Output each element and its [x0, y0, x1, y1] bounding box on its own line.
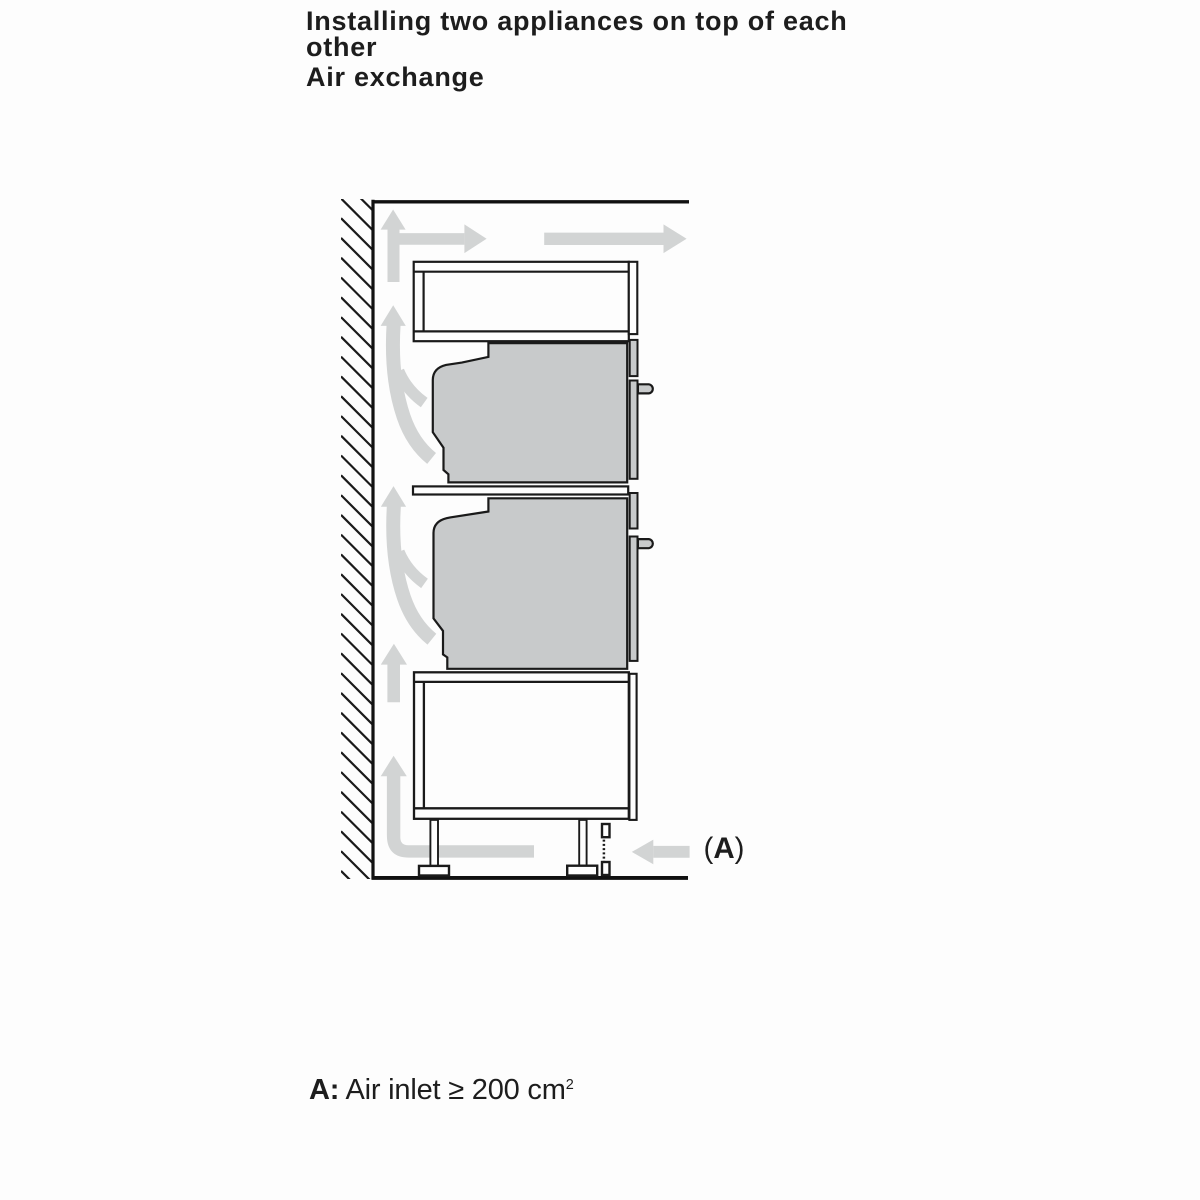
svg-text:(A): (A) [704, 832, 745, 865]
